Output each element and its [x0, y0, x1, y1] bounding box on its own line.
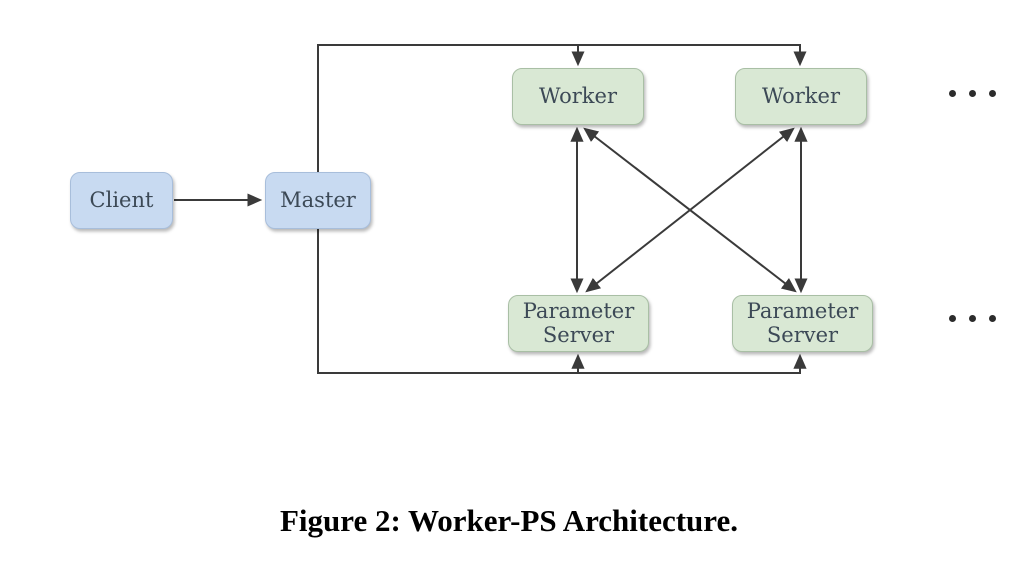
node-parameter-server-1: Parameter Server	[508, 295, 649, 352]
node-parameter-server-2: Parameter Server	[732, 295, 873, 352]
ellipsis-dot	[949, 90, 956, 97]
node-parameter-server-1-label: Parameter Server	[515, 300, 642, 347]
node-worker-1-label: Worker	[539, 85, 617, 109]
node-worker-2-label: Worker	[762, 85, 840, 109]
node-client: Client	[70, 172, 173, 229]
ellipsis-dot	[989, 315, 996, 322]
figure-caption: Figure 2: Worker-PS Architecture.	[0, 503, 1018, 539]
node-parameter-server-2-label: Parameter Server	[739, 300, 866, 347]
node-master-label: Master	[280, 189, 356, 213]
worker-ps-architecture-figure: Client Master Worker Worker Parameter Se…	[0, 0, 1018, 572]
ellipsis-dot	[949, 315, 956, 322]
more-parameter-servers-ellipsis-icon	[949, 315, 996, 322]
node-worker-2: Worker	[735, 68, 867, 125]
node-client-label: Client	[90, 189, 154, 213]
ellipsis-dot	[989, 90, 996, 97]
ellipsis-dot	[969, 90, 976, 97]
ellipsis-dot	[969, 315, 976, 322]
node-master: Master	[265, 172, 371, 229]
more-workers-ellipsis-icon	[949, 90, 996, 97]
node-worker-1: Worker	[512, 68, 644, 125]
